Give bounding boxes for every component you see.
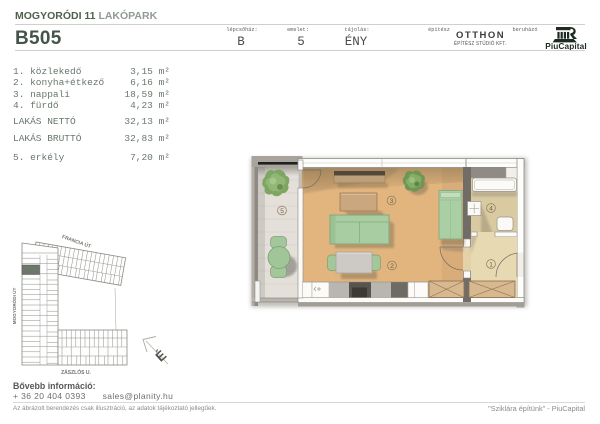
svg-text:MOGYORÓDI ÚT: MOGYORÓDI ÚT [10, 288, 17, 325]
svg-text:4: 4 [489, 206, 493, 213]
svg-text:3: 3 [390, 198, 394, 205]
svg-text:1: 1 [489, 262, 493, 269]
svg-text:PiuCapital: PiuCapital [545, 41, 587, 50]
svg-text:5: 5 [280, 208, 284, 215]
svg-text:É: É [153, 347, 170, 364]
svg-text:ZÁSZLÓS U.: ZÁSZLÓS U. [61, 368, 91, 376]
svg-text:2: 2 [390, 263, 394, 270]
